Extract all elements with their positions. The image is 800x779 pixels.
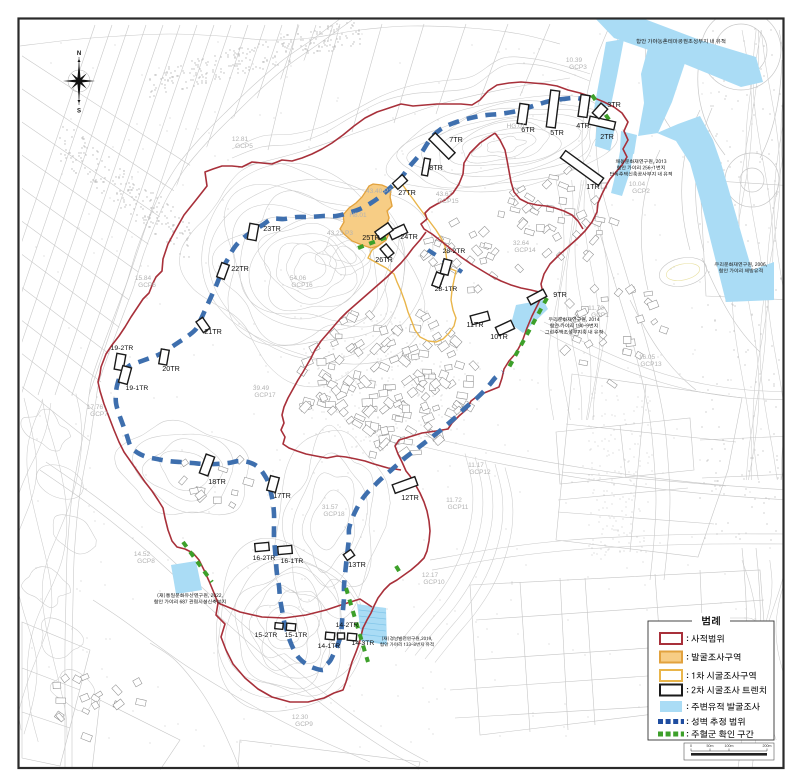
svg-text:28-1TR: 28-1TR	[435, 286, 458, 293]
svg-text:3TR: 3TR	[607, 100, 621, 109]
svg-text:26TR: 26TR	[375, 255, 393, 264]
svg-text:19-2TR: 19-2TR	[111, 345, 134, 352]
svg-text:4TR: 4TR	[576, 121, 590, 130]
svg-text:15.84: 15.84	[135, 275, 152, 282]
svg-text:100m: 100m	[725, 744, 734, 748]
svg-text:GCP18: GCP18	[323, 511, 345, 518]
svg-text:19-1TR: 19-1TR	[126, 385, 149, 392]
svg-text:GCP8: GCP8	[137, 558, 155, 565]
svg-text:9TR: 9TR	[553, 290, 567, 299]
svg-text:10TR: 10TR	[490, 332, 508, 341]
svg-text:GCP17: GCP17	[254, 392, 276, 399]
svg-text:GCP5: GCP5	[235, 143, 253, 150]
svg-text:8TR: 8TR	[429, 163, 443, 172]
svg-text:N: N	[77, 51, 81, 57]
svg-text:7TR: 7TR	[449, 135, 463, 144]
svg-text:10.04: 10.04	[629, 181, 646, 188]
svg-text:12TR: 12TR	[401, 493, 419, 502]
svg-text:12.17: 12.17	[422, 572, 439, 579]
svg-text:GCP9: GCP9	[295, 721, 313, 728]
svg-text:5TR: 5TR	[550, 128, 564, 137]
svg-text:GCP11: GCP11	[448, 504, 469, 511]
svg-text:27TR: 27TR	[398, 188, 416, 197]
svg-text:15-1TR: 15-1TR	[285, 632, 308, 639]
svg-text:GCP6: GCP6	[138, 282, 156, 289]
svg-text:20TR: 20TR	[162, 364, 180, 373]
svg-text:14-2TR: 14-2TR	[336, 622, 359, 629]
svg-text:31.57: 31.57	[322, 504, 339, 511]
svg-text:18TR: 18TR	[208, 477, 226, 486]
svg-text:GCP13: GCP13	[640, 361, 662, 368]
svg-text:11.70: 11.70	[588, 305, 604, 312]
svg-text:GCP15: GCP15	[437, 198, 459, 205]
svg-text:12.81: 12.81	[232, 136, 249, 143]
svg-text:17.76: 17.76	[87, 404, 104, 411]
svg-text:GCP14: GCP14	[514, 247, 536, 254]
svg-text:11.72: 11.72	[446, 497, 462, 504]
svg-text:GCP3: GCP3	[569, 64, 587, 71]
svg-text:15-2TR: 15-2TR	[255, 632, 278, 639]
svg-text:43.23 P3: 43.23 P3	[327, 230, 353, 237]
svg-text:39.49: 39.49	[253, 385, 270, 392]
svg-text:GCP1: GCP1	[591, 312, 609, 319]
svg-text:17TR: 17TR	[273, 491, 291, 500]
svg-text:43.67: 43.67	[436, 191, 453, 198]
svg-text:11TR: 11TR	[466, 320, 483, 329]
svg-text:24TR: 24TR	[400, 232, 418, 241]
svg-text:14-3TR: 14-3TR	[352, 640, 375, 647]
svg-text:10.39: 10.39	[566, 57, 583, 64]
svg-text:GCP2: GCP2	[632, 188, 650, 195]
svg-text:H8.01: H8.01	[349, 212, 367, 219]
svg-text:50m: 50m	[707, 744, 714, 748]
svg-text:2TR: 2TR	[600, 132, 614, 141]
svg-text:0: 0	[690, 744, 692, 748]
svg-text:25TR: 25TR	[362, 233, 380, 242]
svg-text:200m: 200m	[763, 744, 772, 748]
svg-text:28-2TR: 28-2TR	[443, 248, 466, 255]
svg-text:11.17: 11.17	[468, 462, 484, 469]
svg-text:22TR: 22TR	[231, 264, 249, 273]
svg-text:GCP12: GCP12	[469, 469, 491, 476]
svg-text:GCP10: GCP10	[423, 579, 445, 586]
svg-text:16-2TR: 16-2TR	[253, 555, 276, 562]
svg-text:S: S	[77, 109, 81, 115]
svg-text:43.40 P2: 43.40 P2	[366, 188, 392, 195]
svg-text:32.64: 32.64	[513, 240, 530, 247]
svg-text:GCP7: GCP7	[90, 411, 108, 418]
svg-text:21TR: 21TR	[204, 327, 222, 336]
svg-text:16.05: 16.05	[639, 354, 656, 361]
svg-text:1TR: 1TR	[586, 182, 600, 191]
svg-text:14-1TR: 14-1TR	[318, 643, 341, 650]
svg-text:16-1TR: 16-1TR	[281, 558, 304, 565]
svg-text:23TR: 23TR	[263, 224, 281, 233]
svg-text:13TR: 13TR	[348, 560, 366, 569]
svg-text:HG.01: HG.01	[507, 123, 526, 130]
svg-text:12.30: 12.30	[292, 714, 309, 721]
svg-text:GCP16: GCP16	[291, 282, 313, 289]
svg-text:14.52: 14.52	[134, 551, 151, 558]
svg-text:54.06: 54.06	[290, 275, 307, 282]
